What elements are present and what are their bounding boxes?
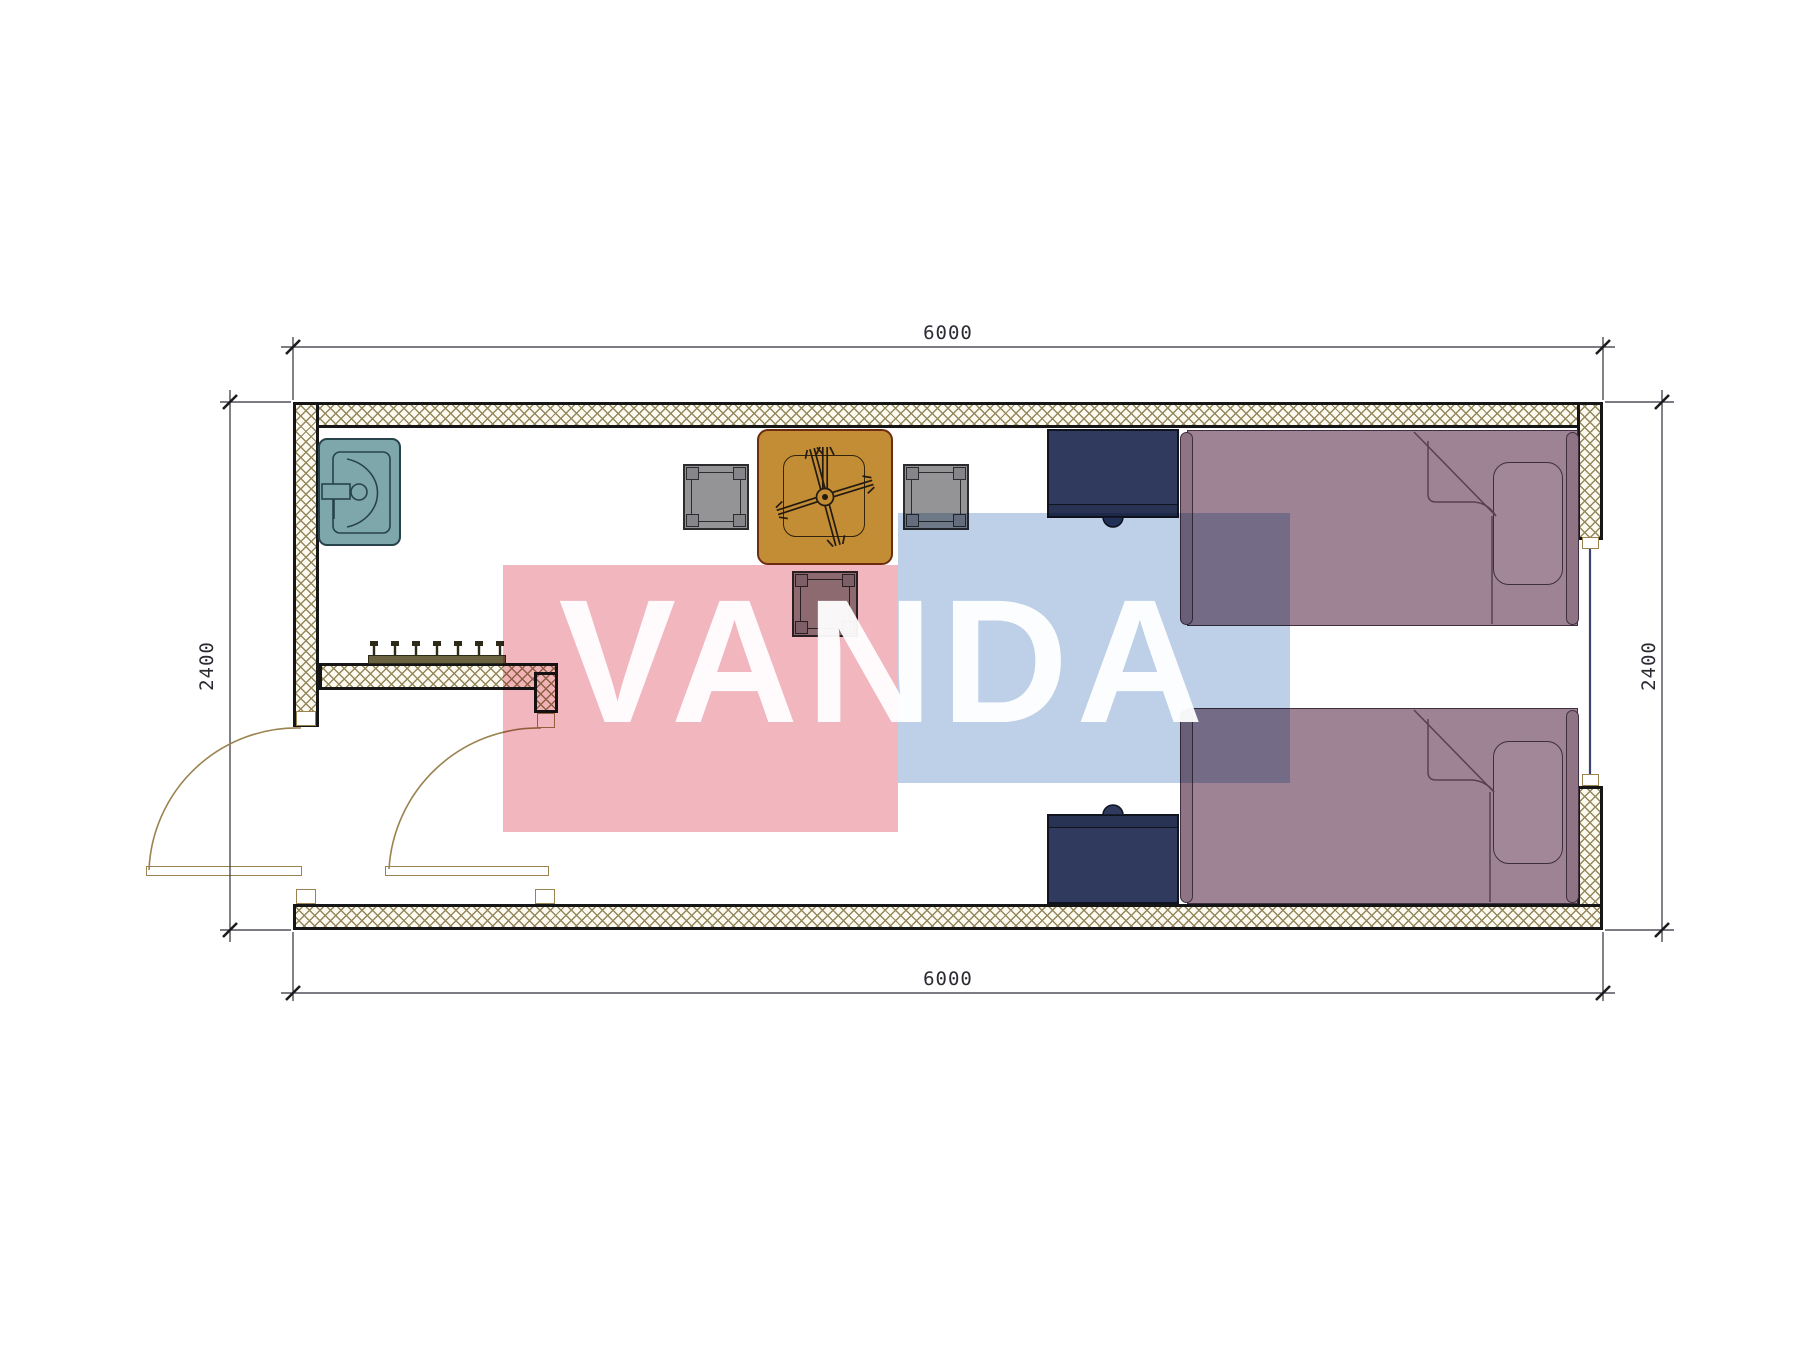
fan-icon	[775, 446, 876, 547]
floor-plan-canvas: 6000 6000 2400 2400 VANDA	[0, 0, 1800, 1350]
dimension-label-right: 2400	[1638, 641, 1660, 691]
watermark-text: VANDA	[420, 577, 1350, 747]
dimension-label-top: 6000	[923, 322, 973, 344]
sink-details	[322, 452, 390, 533]
dimension-label-bottom: 6000	[923, 968, 973, 990]
dimension-label-left: 2400	[196, 641, 218, 691]
door-swing-arcs	[149, 728, 541, 870]
bed-fold-lines	[1414, 432, 1496, 902]
